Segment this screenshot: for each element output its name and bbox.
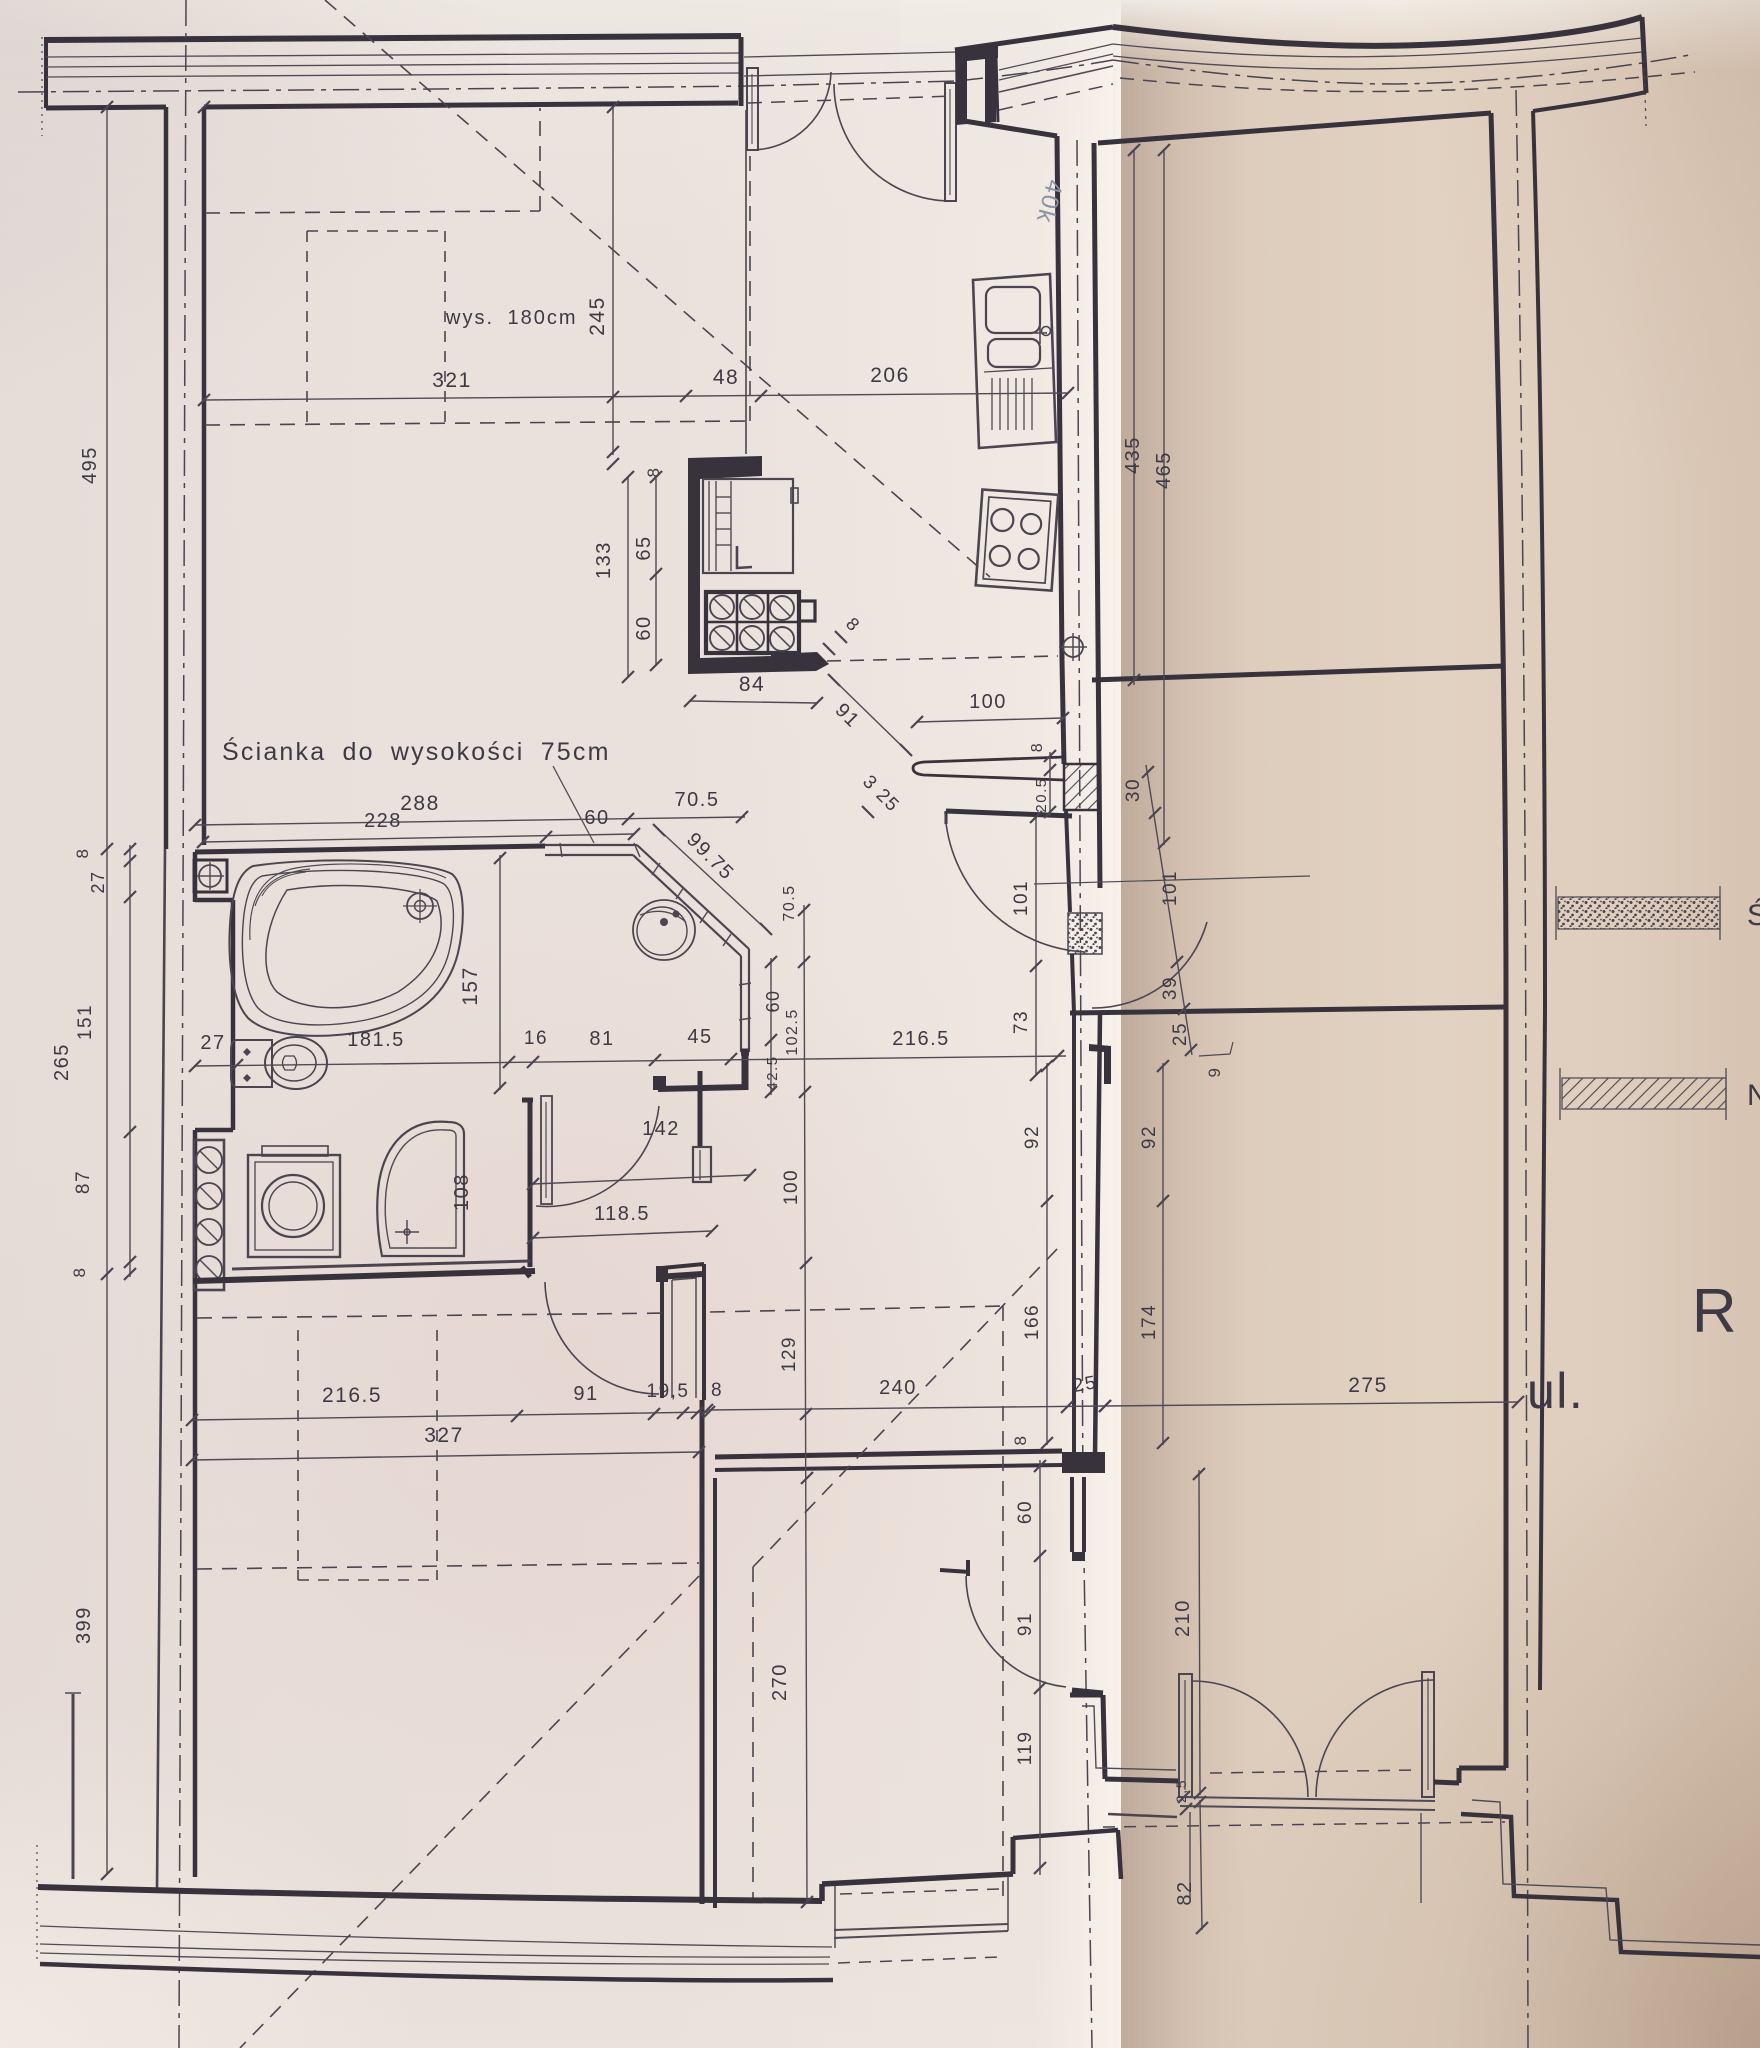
svg-text:210: 210 [1172,1599,1194,1637]
svg-text:101: 101 [1160,870,1181,906]
svg-text:N: N [1747,1079,1760,1112]
svg-text:8: 8 [70,1267,89,1278]
svg-text:181.5: 181.5 [347,1029,405,1051]
svg-text:19,5: 19,5 [647,1381,690,1402]
svg-text:81: 81 [589,1028,614,1050]
svg-text:495: 495 [79,446,101,484]
svg-text:82: 82 [1174,1880,1196,1905]
svg-text:102.5: 102.5 [784,1008,801,1056]
svg-text:101: 101 [1011,880,1032,916]
svg-text:270: 270 [769,1663,791,1701]
svg-text:8: 8 [73,848,92,859]
svg-text:87: 87 [73,1170,94,1194]
svg-text:25: 25 [1170,1022,1191,1046]
svg-text:142: 142 [642,1118,680,1140]
svg-text:228: 228 [364,810,402,832]
svg-text:100: 100 [781,1169,802,1205]
svg-text:245: 245 [586,296,609,336]
svg-text:174: 174 [1139,1304,1160,1340]
svg-text:151: 151 [75,1004,96,1040]
svg-text:8: 8 [1011,1435,1030,1446]
svg-text:60: 60 [1015,1500,1036,1524]
svg-text:27: 27 [200,1032,225,1054]
svg-text:70.5: 70.5 [675,789,720,811]
svg-text:108: 108 [451,1173,473,1211]
svg-text:216.5: 216.5 [892,1028,950,1050]
svg-text:8: 8 [1029,742,1046,752]
svg-text:92: 92 [1139,1125,1160,1149]
svg-text:216.5: 216.5 [322,1384,382,1407]
svg-text:84: 84 [739,673,765,696]
svg-text:100: 100 [969,691,1007,713]
svg-text:129: 129 [779,1336,800,1372]
svg-text:60: 60 [763,989,783,1012]
svg-text:wys. 180cm: wys. 180cm [445,307,578,329]
svg-text:91: 91 [1015,1612,1036,1636]
svg-text:60: 60 [584,807,609,829]
svg-text:73: 73 [1011,1010,1032,1034]
svg-text:91: 91 [573,1383,598,1405]
svg-text:327: 327 [424,1424,464,1447]
svg-text:ul.: ul. [1527,1363,1584,1419]
svg-text:R: R [1692,1277,1738,1346]
svg-text:240: 240 [879,1377,917,1399]
svg-text:Ścianka do wysokości 75cm: Ścianka do wysokości 75cm [222,736,611,766]
svg-text:275: 275 [1348,1374,1388,1397]
svg-text:30: 30 [1123,778,1144,802]
svg-text:133: 133 [593,541,615,579]
svg-text:45: 45 [687,1026,712,1048]
svg-text:321: 321 [432,369,472,392]
svg-text:9: 9 [1205,1067,1224,1078]
svg-text:166: 166 [1022,1304,1043,1340]
svg-text:16: 16 [524,1028,548,1049]
svg-text:8: 8 [711,1380,723,1401]
svg-text:465: 465 [1153,451,1175,489]
svg-text:288: 288 [400,792,440,815]
svg-text:206: 206 [870,364,910,387]
svg-text:27: 27 [88,870,108,893]
svg-text:265: 265 [51,1043,73,1081]
svg-text:157: 157 [459,966,482,1006]
svg-text:60: 60 [633,615,655,640]
svg-text:48: 48 [713,366,739,389]
svg-text:118.5: 118.5 [594,1203,650,1225]
svg-text:Ś: Ś [1747,898,1760,932]
svg-text:65: 65 [633,535,655,560]
svg-text:25: 25 [1071,1372,1098,1397]
svg-text:119: 119 [1015,1731,1036,1766]
svg-text:399: 399 [73,1606,95,1644]
svg-text:435: 435 [1122,436,1144,474]
svg-text:92: 92 [1022,1125,1043,1149]
svg-text:70.5: 70.5 [781,884,798,921]
svg-text:20.5: 20.5 [1033,777,1050,812]
svg-text:39: 39 [1160,976,1181,1000]
svg-text:42.5: 42.5 [764,1055,781,1090]
